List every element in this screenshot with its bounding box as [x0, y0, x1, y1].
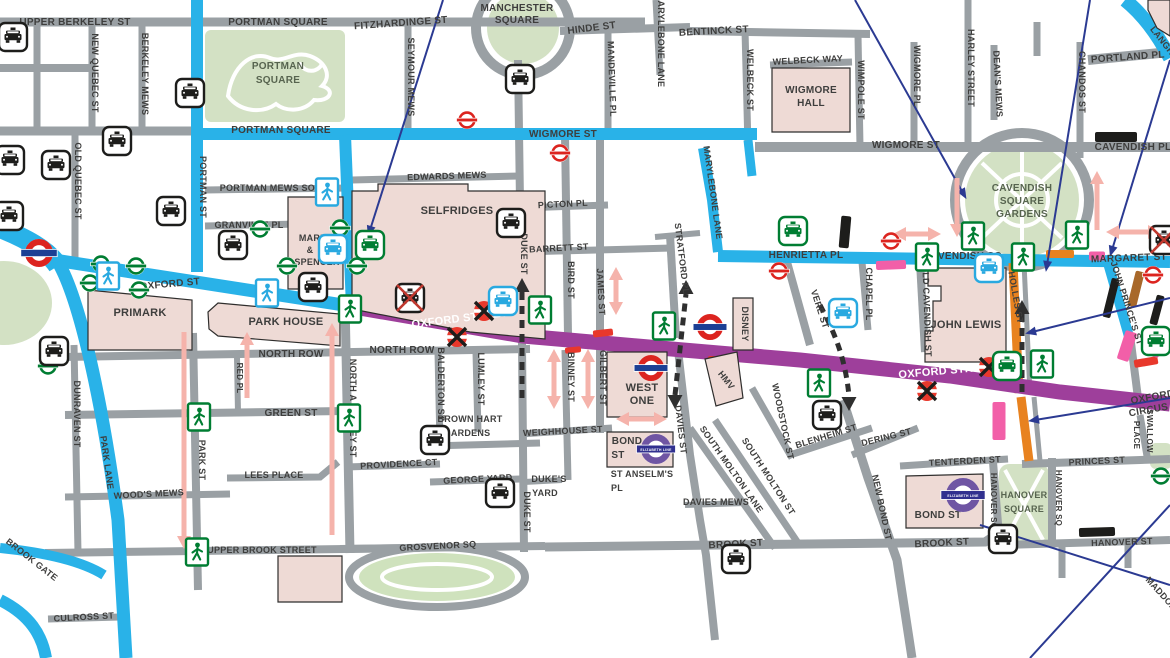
direction-arrowhead-icon: [609, 267, 623, 280]
street-label: NEW QUEBEC ST: [90, 33, 100, 113]
taxi-rank-icon: [486, 479, 514, 507]
street-label: RED PL: [235, 363, 244, 394]
road-blue: [345, 135, 352, 307]
direction-arrowhead-icon: [547, 396, 561, 409]
taxi-rank-icon: [176, 79, 204, 107]
street-label: BENTINCK ST: [679, 24, 749, 39]
taxi-rank-icon-green: [779, 217, 807, 245]
street-label: CULROSS ST: [53, 610, 114, 623]
taxi-rank-icon: [157, 197, 185, 225]
street-label: ST ANSELM'S: [611, 469, 674, 479]
street-label: &: [307, 245, 314, 255]
street-label: MARYLEBONE LANE: [701, 145, 724, 240]
street-label: HALL: [797, 98, 825, 109]
street-label: PROVIDENCE CT: [360, 457, 438, 471]
street-label: WIGMORE ST: [529, 129, 597, 140]
street-label: DISNEY: [740, 306, 750, 341]
taxi-rank-icon-green: [1142, 327, 1170, 355]
direction-arrowhead-icon: [581, 396, 595, 409]
street-label: NORTH ROW: [258, 349, 323, 360]
street-label: SQUARE: [495, 15, 539, 26]
street-label: NORTH A: [348, 359, 358, 402]
pedestrian-crossing-icon: [97, 263, 119, 290]
upper-brook-building: [278, 556, 342, 602]
street-label: PRIMARK: [113, 307, 166, 319]
street-label: SQUARE: [1000, 196, 1044, 207]
street-label: WIGMORE PL: [912, 45, 922, 107]
taxi-rank-icon: [299, 273, 327, 301]
taxi-rank-icon: [103, 127, 131, 155]
street-label: MARYLEBONE LANE: [656, 0, 666, 87]
street-label: BOND ST: [915, 510, 962, 521]
street-label: UPPER BROOK STREET: [207, 545, 317, 555]
street-label: PORTMAN ST: [198, 156, 208, 218]
street-label: LEES PLACE: [244, 470, 303, 480]
direction-arrowhead-icon: [1106, 225, 1119, 239]
pedestrian-crossing-icon: [529, 297, 551, 324]
roundel-label: ELIZABETH LINE: [640, 448, 672, 452]
pedestrian-crossing-icon: [256, 280, 278, 307]
street-label: GILBERT ST: [598, 350, 608, 406]
pointer-line: [1112, 60, 1170, 250]
street-label: NORTH ROW: [369, 345, 434, 356]
street-label: GARDENS: [444, 428, 491, 438]
road-orange: [1021, 397, 1029, 461]
street-label: PORTMAN SQUARE: [228, 17, 328, 28]
closed-bus-stop-icon: [917, 381, 937, 401]
street-label: DUKE ST: [522, 491, 532, 533]
street-label: HARLEY STREET: [966, 29, 976, 107]
taxi-rank-icon: [506, 65, 534, 93]
pedestrian-crossing-icon: [962, 223, 984, 250]
road-gray: [565, 135, 568, 335]
street-label: WIGMORE: [785, 85, 837, 96]
street-label: SELFRIDGES: [421, 205, 494, 217]
closed-bus-stop-icon: [447, 327, 467, 347]
bus-stop-roundel-red: [457, 111, 478, 129]
direction-arrowhead-icon: [609, 302, 623, 315]
grosvenor-square-park: [349, 547, 525, 607]
direction-arrowhead-icon: [581, 349, 595, 362]
street-label: HANOVER: [1001, 490, 1048, 500]
primark-building: [88, 290, 192, 350]
blue-badge-parking-icon: [975, 254, 1003, 282]
street-label: DUKE'S: [531, 474, 566, 484]
street-label: WEIGHHOUSE ST: [523, 424, 603, 438]
street-label: GREEN ST: [264, 408, 317, 419]
street-label: OLD QUEBEC ST: [73, 142, 83, 220]
taxi-rank-icon: [219, 231, 247, 259]
suspended-taxi-rank-icon: [396, 284, 424, 312]
street-label: PL: [611, 483, 623, 493]
street-label: MANCHESTER: [480, 3, 554, 14]
street-label: PARK ST: [197, 440, 207, 481]
map-viewport: UPPER BERKELEY STPORTMAN SQUAREFITZHARDI…: [0, 0, 1170, 658]
pedestrian-crossing-icon: [339, 296, 361, 323]
street-label: PORTLAND PL: [1091, 49, 1165, 65]
pedestrian-crossing-icon: [916, 244, 938, 271]
marble-arch-green: [0, 261, 52, 345]
street-label: UPPER BERKELEY ST: [19, 17, 130, 28]
underground-station-roundel: [693, 314, 727, 340]
bus-stop-roundel-green: [1151, 467, 1170, 485]
road-gray: [678, 350, 715, 640]
blue-badge-parking-icon: [319, 235, 347, 263]
street-label: JOHN LEWIS: [931, 319, 1002, 331]
taxi-rank-icon: [0, 23, 27, 51]
street-label: HENRIETTA PL: [769, 250, 844, 261]
roundel-label: ELIZABETH LINE: [947, 494, 979, 498]
street-label: BROOK ST: [914, 537, 969, 551]
road-blue: [748, 140, 752, 176]
suspended-taxi-rank-icon: [1150, 226, 1170, 254]
street-label: WIMPOLE ST: [856, 60, 866, 120]
pink-marker: [876, 260, 906, 270]
street-label: SEYMOUR MEWS: [406, 37, 416, 116]
taxi-rank-icon: [0, 146, 24, 174]
street-label: HANOVER SQ: [989, 473, 998, 529]
street-label: ST: [611, 450, 624, 461]
street-label: WIGMORE ST: [872, 140, 940, 151]
street-label: DUKE ST: [519, 233, 529, 275]
pedestrian-crossing-icon: [316, 179, 338, 206]
street-label: CHANDOS ST: [1077, 51, 1087, 113]
pedestrian-crossing-icon: [186, 539, 208, 566]
street-label: CHAPEL PL: [864, 267, 874, 320]
street-label: YARD: [532, 488, 558, 498]
taxi-rank-icon: [42, 151, 70, 179]
pedestrian-crossing-icon: [338, 405, 360, 432]
pedestrian-crossing-icon: [653, 313, 675, 340]
street-label: WEST: [626, 382, 659, 394]
street-label: PARK HOUSE: [248, 316, 323, 328]
street-label: BINNEY ST: [566, 352, 576, 402]
street-label: ONE: [630, 395, 655, 407]
street-label: WELBECK ST: [745, 49, 755, 111]
street-label: CAVENDISH: [992, 183, 1052, 194]
street-label: HANOVER SQ: [1054, 470, 1063, 526]
street-label: PORTMAN SQUARE: [231, 125, 331, 136]
street-label: BERKELEY MEWS: [140, 33, 150, 116]
blue-badge-parking-icon: [489, 287, 517, 315]
taxi-rank-icon: [722, 545, 750, 573]
closure-bar: [1133, 356, 1158, 368]
street-label: EY ST: [348, 430, 358, 457]
taxi-rank-icon: [989, 525, 1017, 553]
street-label: PORTMAN: [252, 61, 304, 72]
street-label: WOOD'S MEWS: [113, 487, 184, 501]
street-label: GRANVILLE PL: [214, 220, 283, 230]
bus-stop-roundel-red: [1143, 266, 1164, 284]
direction-arrowhead-icon: [1090, 171, 1104, 184]
street-label: PLACE: [1132, 421, 1141, 450]
street-label: HANOVER ST: [1091, 536, 1153, 548]
black-marker: [1095, 132, 1137, 142]
street-label: DUNRAVEN ST: [72, 380, 82, 447]
road-blue: [0, 600, 46, 658]
street-label: LUMLEY ST: [476, 352, 486, 405]
pointer-line: [855, 0, 963, 193]
street-label: BIRD ST: [566, 261, 576, 299]
taxi-rank-icon: [421, 426, 449, 454]
blue-badge-parking-icon: [829, 299, 857, 327]
street-label: PRINCES ST: [1068, 455, 1125, 468]
taxi-rank-icon-green: [993, 352, 1021, 380]
street-label: GARDENS: [996, 209, 1048, 220]
road-gray: [1024, 263, 1030, 393]
pedestrian-crossing-icon: [808, 370, 830, 397]
taxi-rank-icon: [0, 202, 23, 230]
street-label: SQUARE: [1004, 504, 1044, 514]
road-gray: [74, 345, 78, 553]
taxi-rank-icon: [40, 337, 68, 365]
street-label: SQUARE: [256, 75, 300, 86]
pink-marker: [993, 402, 1006, 440]
road-gray: [787, 262, 810, 345]
street-label: BALDERTON ST: [436, 347, 446, 421]
pedestrian-crossing-icon: [1031, 351, 1053, 378]
street-label: MADDOX ST: [1144, 575, 1170, 624]
black-marker: [1079, 527, 1115, 537]
pedestrian-crossing-icon: [1066, 222, 1088, 249]
direction-arrowhead-icon: [547, 349, 561, 362]
black-marker: [839, 216, 852, 249]
taxi-rank-icon: [813, 401, 841, 429]
direction-arrowhead-icon: [928, 227, 941, 241]
pedestrian-crossing-icon: [188, 404, 210, 431]
road-gray: [1034, 397, 1040, 461]
street-label: VERE ST: [809, 288, 831, 330]
street-label: BROWN HART: [438, 414, 503, 424]
street-map: UPPER BERKELEY STPORTMAN SQUAREFITZHARDI…: [0, 0, 1170, 658]
street-label: CAVENDISH PL: [1095, 142, 1170, 153]
taxi-rank-icon: [497, 209, 525, 237]
street-label: DAVIES MEWS: [683, 497, 749, 507]
pedestrian-crossing-icon: [1012, 244, 1034, 271]
taxi-rank-icon-green: [356, 231, 384, 259]
